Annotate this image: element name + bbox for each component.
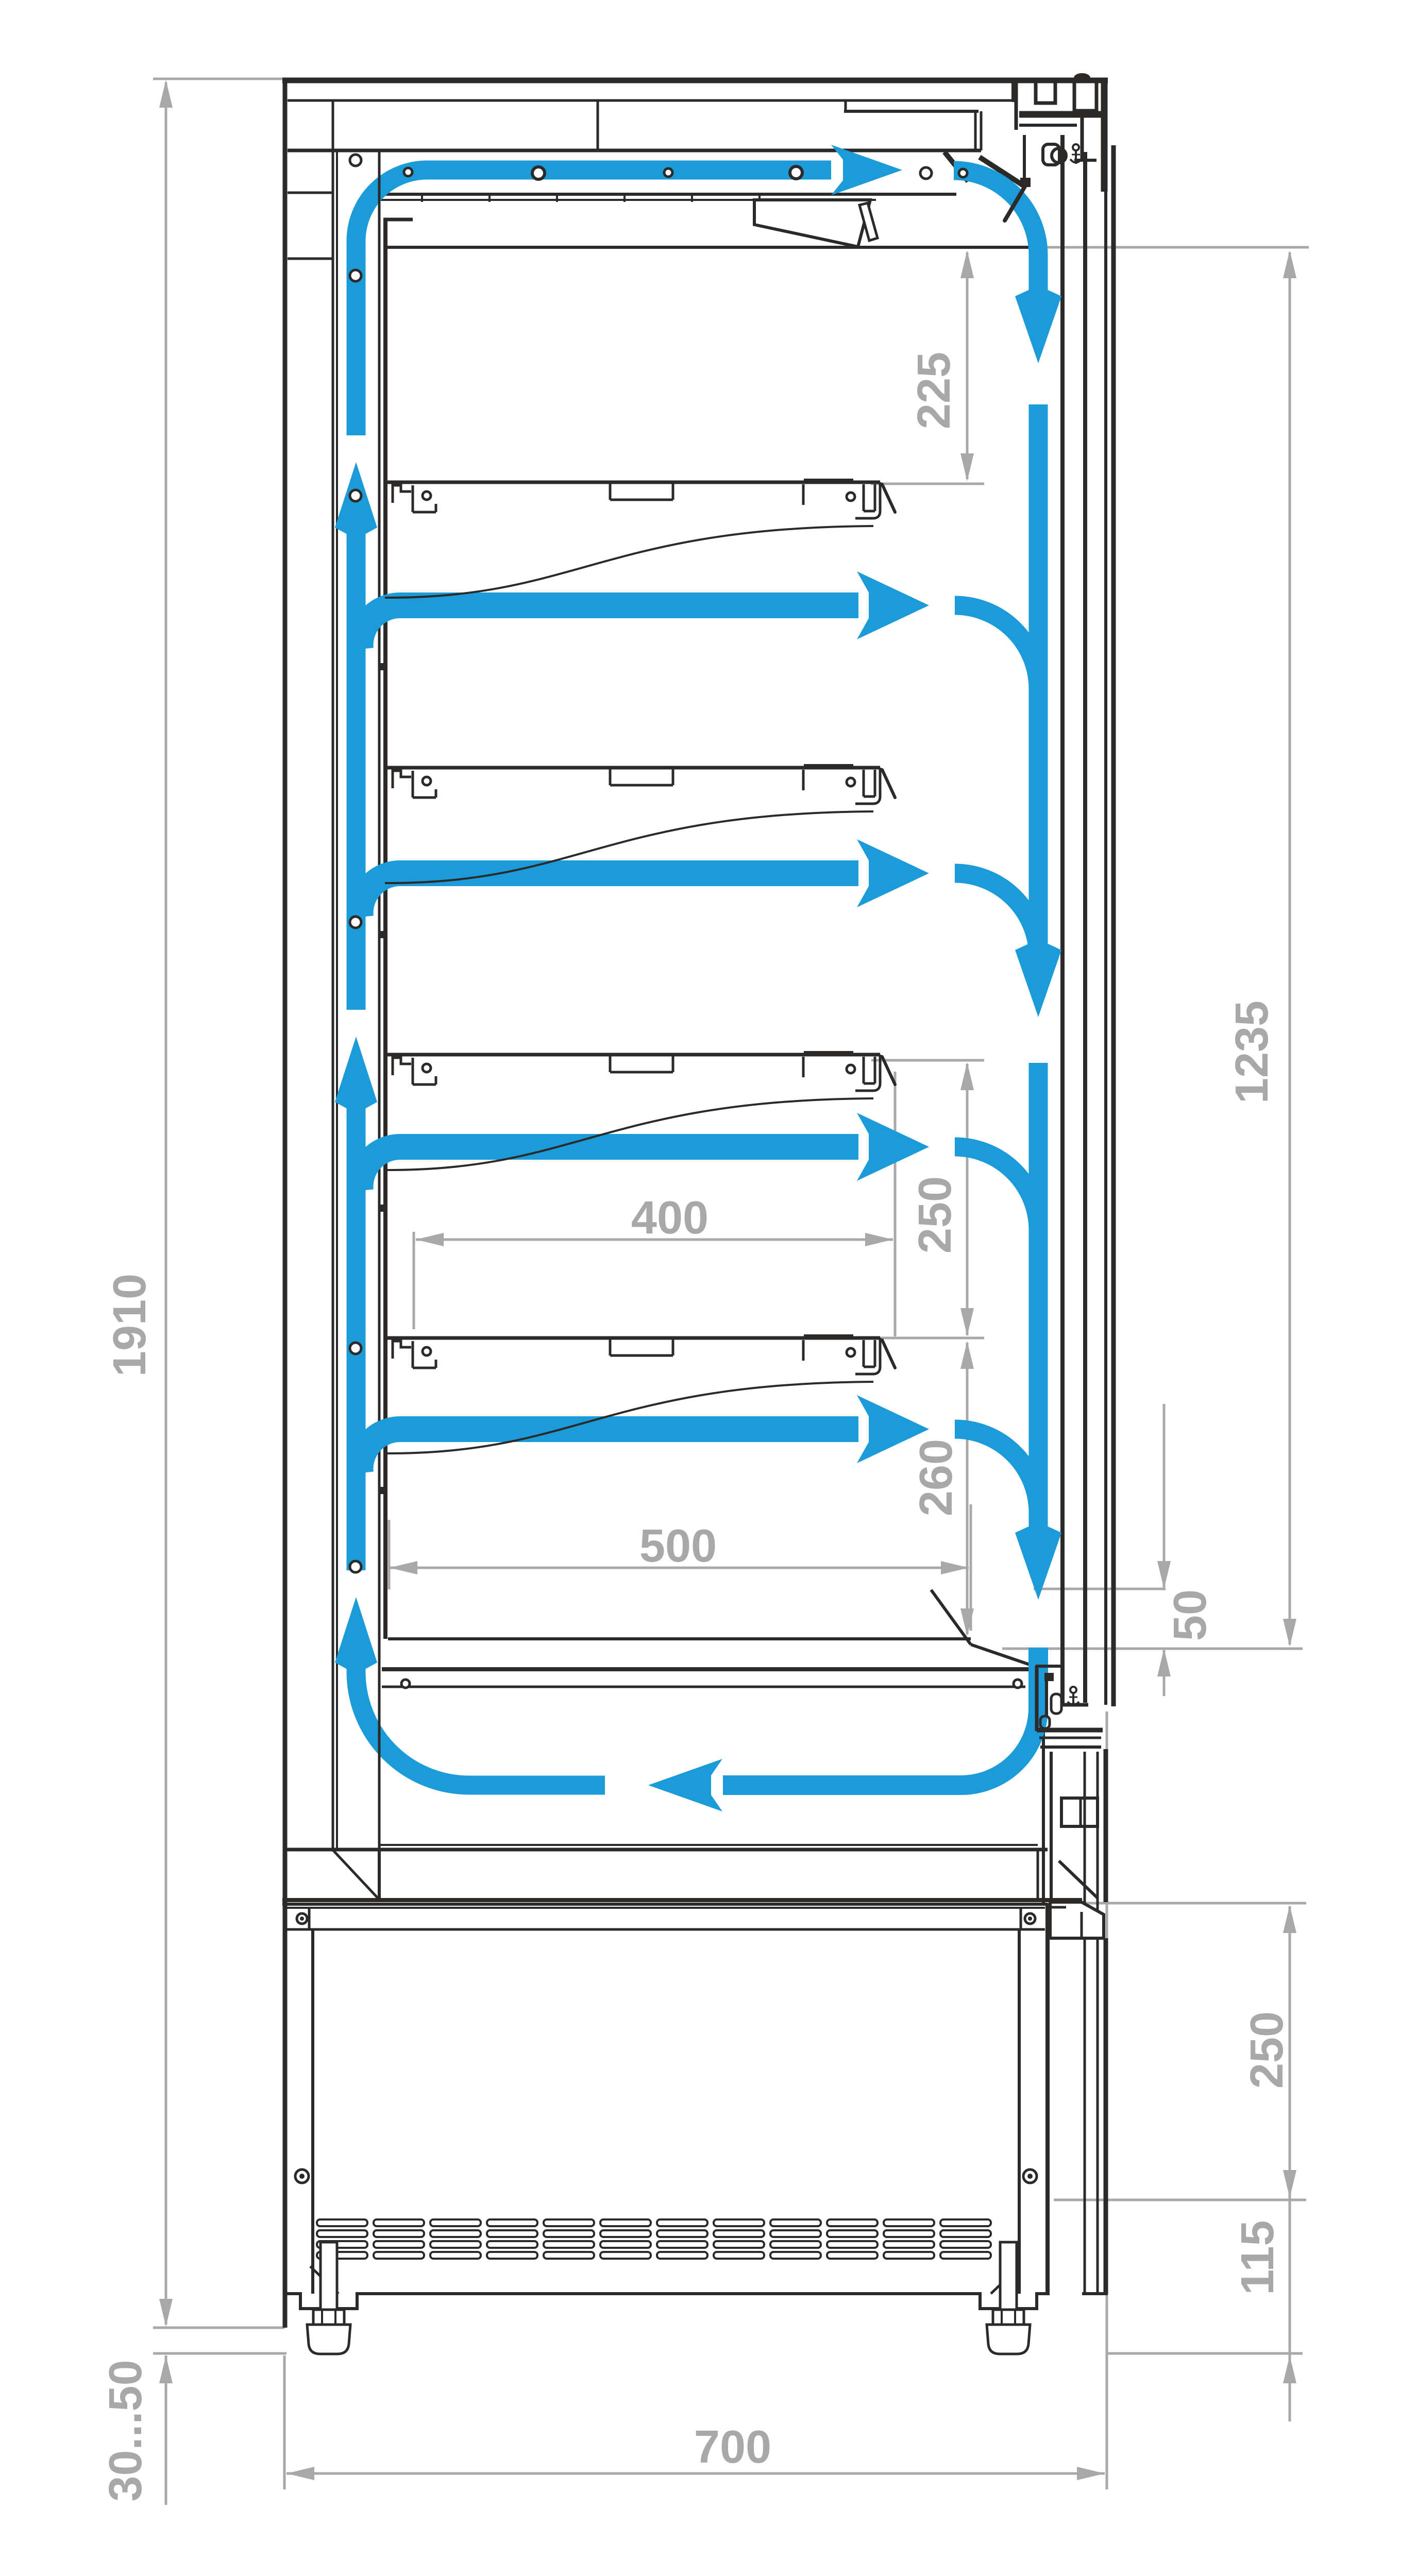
svg-text:250: 250 <box>909 1176 961 1253</box>
svg-text:260: 260 <box>910 1439 962 1516</box>
svg-text:700: 700 <box>694 2421 771 2473</box>
svg-text:30...50: 30...50 <box>100 2360 151 2501</box>
svg-text:1910: 1910 <box>104 1274 156 1377</box>
svg-text:50: 50 <box>1165 1589 1216 1641</box>
svg-text:400: 400 <box>631 1192 709 1244</box>
svg-text:115: 115 <box>1232 2220 1284 2295</box>
svg-text:250: 250 <box>1241 2011 1293 2089</box>
svg-text:1235: 1235 <box>1226 1001 1278 1104</box>
svg-text:500: 500 <box>639 1520 717 1572</box>
svg-text:225: 225 <box>908 352 960 429</box>
